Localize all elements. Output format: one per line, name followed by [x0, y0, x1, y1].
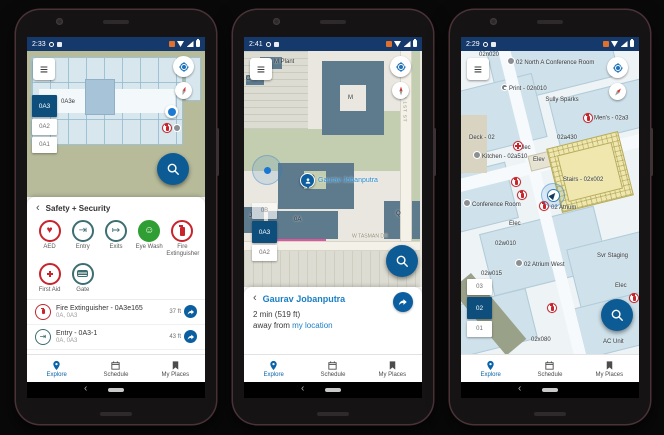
notification-icon: [57, 42, 62, 47]
search-fab[interactable]: [157, 153, 189, 185]
result-distance: 37 ft: [169, 309, 181, 315]
location-puck: [541, 183, 565, 207]
front-camera: [56, 18, 63, 25]
fire-extinguisher-marker[interactable]: [162, 123, 172, 133]
android-home-pill[interactable]: [325, 388, 341, 392]
list-item[interactable]: Fire Extinguisher - 0A3e165 0A, 0A3 37 f…: [27, 300, 205, 325]
location-accuracy-circle: [252, 155, 282, 185]
bottom-nav: Explore Schedule My Places: [461, 354, 639, 382]
room-label: 02w010: [495, 241, 516, 248]
notification-icon: [491, 42, 496, 47]
eye-wash-icon: ☺: [138, 220, 160, 242]
away-text: away from my location: [244, 319, 422, 332]
screenshot-icon: [386, 41, 392, 47]
locate-button[interactable]: [607, 57, 628, 78]
bottom-sheet: ‹ Safety + Security ♥ AED ⇥ Entry ↦ Exit…: [27, 197, 205, 354]
screen-2: 2:41: [244, 37, 422, 398]
directions-button[interactable]: [184, 305, 197, 318]
amenity-icon: [463, 199, 471, 207]
room-label: 02 Atrium West: [515, 259, 565, 269]
signal-icon: [404, 41, 411, 47]
building-0a: [268, 211, 338, 239]
directions-arrow-icon: [398, 297, 408, 307]
bottom-speaker: [317, 412, 349, 416]
clock-icon: [49, 42, 54, 47]
phone-1: 2:33 0A3e ≡ 0A3: [16, 10, 216, 424]
category-exits[interactable]: ↦ Exits: [99, 220, 132, 258]
green-area: [384, 111, 400, 171]
results-list: Fire Extinguisher - 0A3e165 0A, 0A3 37 f…: [27, 299, 205, 350]
list-item[interactable]: ⇥ Entry - 0A3-1 0A, 0A3 43 ft: [27, 325, 205, 350]
battery-icon: [630, 40, 634, 47]
wifi-icon: [177, 41, 184, 47]
result-title: Fire Extinguisher - 0A3e165: [56, 305, 143, 312]
earpiece-speaker: [103, 20, 129, 24]
fire-extinguisher-icon: [171, 220, 193, 242]
clock-icon: [266, 42, 271, 47]
indoor-map[interactable]: 02n020 02 North A Conference Room Print …: [461, 51, 639, 354]
front-camera: [273, 18, 280, 25]
battery-icon: [413, 40, 417, 47]
tab-explore[interactable]: Explore: [461, 355, 520, 382]
category-fire-extinguisher[interactable]: Fire Extinguisher: [166, 220, 199, 258]
phone-2: 2:41: [233, 10, 433, 424]
building-label: M: [348, 95, 353, 102]
fire-extinguisher-marker[interactable]: [547, 303, 557, 313]
calendar-icon: [110, 360, 121, 371]
search-icon: [610, 308, 624, 322]
directions-button[interactable]: [184, 330, 197, 343]
result-subtitle: 0A, 0A3: [56, 338, 97, 344]
calendar-icon: [544, 360, 555, 371]
android-nav-bar: ‹: [244, 382, 422, 398]
indoor-map[interactable]: 0A3e ≡ 0A3 0A2 0A1: [27, 51, 205, 197]
tab-schedule[interactable]: Schedule: [303, 355, 362, 382]
person-label[interactable]: Gaurav Jobanputra: [318, 177, 378, 185]
building-courtyard: [340, 85, 366, 111]
tab-my-places[interactable]: My Places: [580, 355, 639, 382]
campus-map[interactable]: M Plant O Plant M O 0A Q J N 1ST ST W TA…: [244, 51, 422, 287]
earpiece-speaker: [320, 20, 346, 24]
room-label: Deck - 02: [469, 135, 495, 142]
street-label: N 1ST ST: [402, 95, 407, 122]
building-label: Q: [396, 211, 401, 218]
tab-my-places[interactable]: My Places: [363, 355, 422, 382]
fire-extinguisher-marker[interactable]: [511, 177, 521, 187]
android-back-icon[interactable]: ‹: [301, 384, 304, 394]
printer-icon: [501, 84, 508, 91]
tab-explore[interactable]: Explore: [244, 355, 303, 382]
status-bar: 2:41: [244, 37, 422, 51]
street-label: W TASMAN DR: [352, 234, 388, 240]
room-label: Stairs - 02x002: [563, 177, 603, 184]
room-label: Kitchen - 02a510: [473, 151, 527, 161]
sheet-title: Gaurav Jobanputra: [263, 294, 346, 304]
signal-icon: [187, 41, 194, 47]
floor-chip[interactable]: 02: [467, 297, 492, 319]
room-label: 0A3e: [61, 99, 75, 106]
screen-1: 2:33 0A3e ≡ 0A3: [27, 37, 205, 398]
android-home-pill[interactable]: [542, 388, 558, 392]
category-grid: ♥ AED ⇥ Entry ↦ Exits ☺ Eye Wash Fire: [27, 217, 205, 296]
person-icon: [304, 177, 312, 185]
back-icon[interactable]: ‹: [36, 203, 40, 214]
gps-target-icon: [612, 62, 624, 74]
map-pin-icon: [51, 360, 62, 371]
tab-my-places[interactable]: My Places: [146, 355, 205, 382]
compass-needle-icon: [610, 84, 624, 98]
calendar-icon: [327, 360, 338, 371]
status-bar: 2:29: [461, 37, 639, 51]
room-label: Sully Sparks: [545, 97, 579, 104]
room-label: Elec: [615, 283, 627, 290]
menu-button[interactable]: ≡: [33, 58, 55, 80]
map-pin-icon: [268, 360, 279, 371]
result-title: Entry - 0A3-1: [56, 330, 97, 337]
power-button: [650, 128, 653, 176]
floor-selector: 0A3 0A2 0A1: [32, 95, 57, 153]
first-aid-icon: [39, 263, 61, 285]
tab-schedule[interactable]: Schedule: [520, 355, 579, 382]
earpiece-speaker: [537, 20, 563, 24]
wifi-icon: [394, 41, 401, 47]
compass-needle-icon: [177, 84, 190, 97]
search-fab[interactable]: [386, 245, 418, 277]
floor-selector: 03 02 01: [467, 279, 492, 337]
floor-chip[interactable]: 0A2: [32, 119, 57, 135]
floor-chip[interactable]: 0A3: [32, 95, 57, 117]
power-button: [216, 128, 219, 176]
directions-button[interactable]: [393, 292, 413, 312]
category-eye-wash[interactable]: ☺ Eye Wash: [133, 220, 166, 258]
aed-icon: ♥: [39, 220, 61, 242]
bottom-sheet: ‹ Gaurav Jobanputra 2 min (519 ft) away …: [244, 287, 422, 354]
status-time: 2:33: [32, 41, 46, 48]
compass-button[interactable]: [392, 82, 409, 99]
bottom-speaker: [534, 412, 566, 416]
amenity-icon: [507, 57, 515, 65]
room-label: Men's - 02a3: [583, 113, 629, 123]
room-label: Conference Room: [463, 199, 521, 209]
room-label: 02x080: [531, 337, 551, 344]
android-nav-bar: ‹: [27, 382, 205, 398]
screen-3: 2:29 02n020 02: [461, 37, 639, 398]
fire-extinguisher-marker[interactable]: [583, 113, 593, 123]
screenshot-icon: [169, 41, 175, 47]
room-label: Elec: [509, 221, 521, 228]
tab-explore[interactable]: Explore: [27, 355, 86, 382]
room-label: 02 North A Conference Room: [507, 57, 594, 67]
floor-chip[interactable]: 0B: [252, 203, 277, 219]
search-icon: [395, 254, 409, 268]
my-location-link[interactable]: my location: [292, 321, 332, 330]
bookmark-icon: [387, 360, 398, 371]
building-label: M Plant: [274, 59, 294, 66]
locate-button[interactable]: [173, 56, 194, 77]
compass-button[interactable]: [175, 82, 192, 99]
amenity-marker[interactable]: [173, 124, 181, 132]
exits-icon: ↦: [105, 220, 127, 242]
highlighted-room[interactable]: [85, 79, 115, 115]
status-bar: 2:33: [27, 37, 205, 51]
gps-target-icon: [178, 61, 190, 73]
android-home-pill[interactable]: [108, 388, 124, 392]
category-aed[interactable]: ♥ AED: [33, 220, 66, 258]
menu-button[interactable]: ≡: [467, 58, 489, 80]
menu-button[interactable]: ≡: [250, 58, 272, 80]
floor-chip[interactable]: 0A2: [252, 245, 277, 261]
fire-extinguisher-icon: [35, 304, 51, 320]
locate-button[interactable]: [390, 56, 411, 77]
phone-3: 2:29 02n020 02: [450, 10, 650, 424]
bookmark-icon: [170, 360, 181, 371]
android-back-icon[interactable]: ‹: [518, 384, 521, 394]
result-distance: 43 ft: [169, 334, 181, 340]
road: [400, 51, 412, 247]
gate-icon: [72, 263, 94, 285]
battery-icon: [196, 40, 200, 47]
status-time: 2:41: [249, 41, 263, 48]
sheet-title: Safety + Security: [46, 204, 111, 213]
bottom-nav: Explore Schedule My Places: [27, 354, 205, 382]
building-label: 0A: [294, 217, 301, 224]
person-pin[interactable]: [300, 173, 315, 188]
compass-button[interactable]: [609, 83, 626, 100]
room-label: Svr Staging: [597, 253, 628, 260]
floor-chip[interactable]: 03: [467, 279, 492, 295]
terrace-area: [461, 115, 487, 173]
bookmark-icon: [604, 360, 615, 371]
category-gate[interactable]: Gate: [66, 263, 99, 294]
floor-chip[interactable]: 01: [467, 321, 492, 337]
back-icon[interactable]: ‹: [253, 293, 257, 304]
room-label: Print - 02n010: [501, 84, 547, 93]
room-label: 02w015: [481, 271, 502, 278]
floor-chip[interactable]: 0A3: [252, 221, 277, 243]
screenshot-icon: [603, 41, 609, 47]
gps-target-icon: [395, 61, 407, 73]
clock-icon: [483, 42, 488, 47]
amenity-icon: [473, 151, 481, 159]
entry-icon: ⇥: [35, 329, 51, 345]
room-label: Elev: [533, 157, 545, 164]
category-entry[interactable]: ⇥ Entry: [66, 220, 99, 258]
amenity-icon: [515, 259, 523, 267]
signal-icon: [621, 41, 628, 47]
map-pin-icon: [485, 360, 496, 371]
result-subtitle: 0A, 0A3: [56, 313, 143, 319]
floor-selector: 0B 0A3 0A2: [252, 203, 277, 261]
fire-extinguisher-marker[interactable]: [629, 293, 639, 303]
entry-icon: ⇥: [72, 220, 94, 242]
notification-icon: [274, 42, 279, 47]
category-first-aid[interactable]: First Aid: [33, 263, 66, 294]
room-label: AC Unit: [603, 339, 624, 346]
wifi-icon: [611, 41, 618, 47]
power-button: [433, 128, 436, 176]
tab-schedule[interactable]: Schedule: [86, 355, 145, 382]
first-aid-marker[interactable]: [513, 141, 523, 151]
directions-arrow-icon: [187, 333, 195, 341]
directions-arrow-icon: [187, 308, 195, 316]
bottom-nav: Explore Schedule My Places: [244, 354, 422, 382]
front-camera: [490, 18, 497, 25]
bottom-speaker: [100, 412, 132, 416]
search-icon: [166, 162, 180, 176]
floor-chip[interactable]: 0A1: [32, 137, 57, 153]
current-location-dot: [165, 105, 178, 118]
room-label: 02a430: [557, 135, 577, 142]
search-fab[interactable]: [601, 299, 633, 331]
android-back-icon[interactable]: ‹: [84, 384, 87, 394]
fire-extinguisher-marker[interactable]: [517, 190, 527, 200]
status-time: 2:29: [466, 41, 480, 48]
android-nav-bar: ‹: [461, 382, 639, 398]
compass-needle-icon: [396, 86, 406, 96]
